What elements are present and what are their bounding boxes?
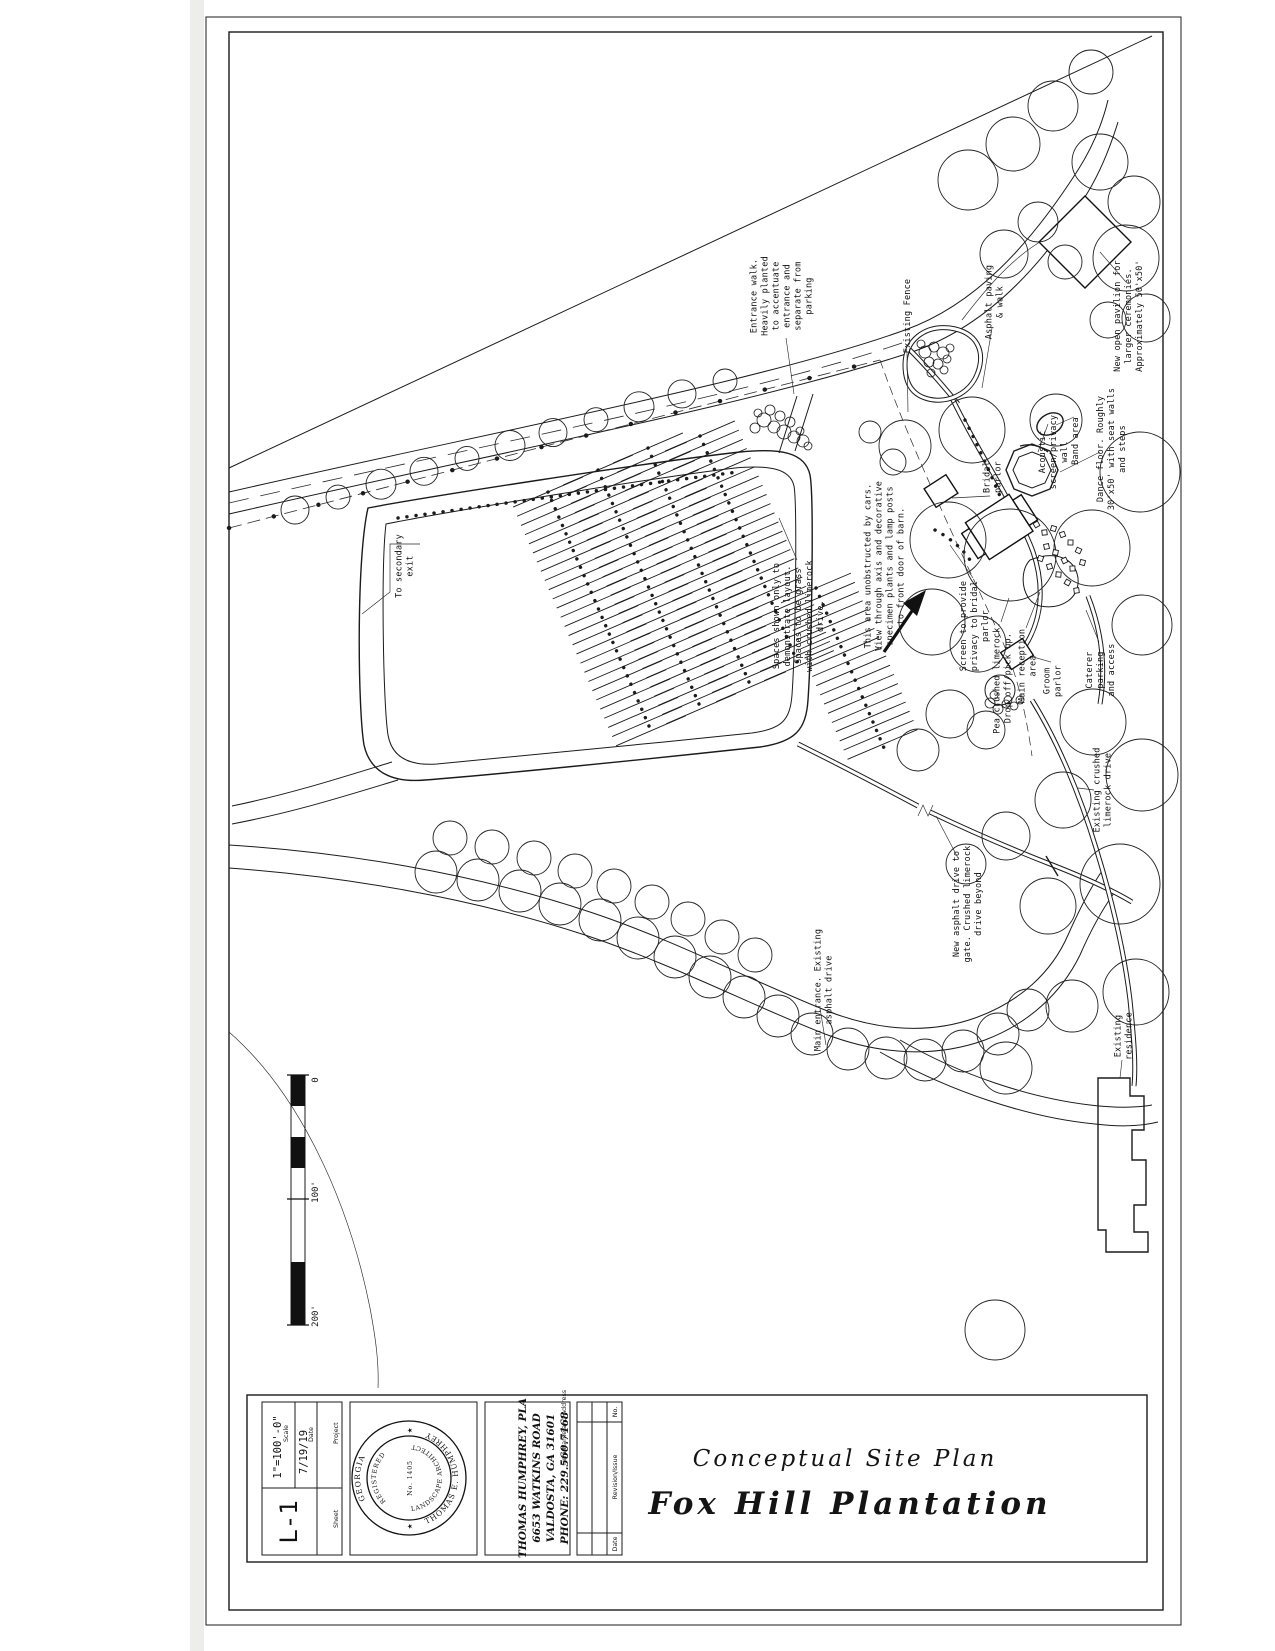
seal-profession: LANDSCAPE ARCHITECT	[411, 1443, 445, 1513]
revision-date-header: Date	[612, 1536, 619, 1551]
tree-canopy	[1035, 772, 1091, 828]
title-block: Project Date 7/19/19 Scale 1"=100'-0" Sh…	[247, 1390, 1147, 1562]
plan-label-new-pavilion: New open pavilion forlarger ceremonies.A…	[1113, 260, 1145, 372]
svg-text:Dance floor. Roughly30'x50' wi: Dance floor. Roughly30'x50' with seat wa…	[1096, 388, 1128, 510]
seal-star-right: ★	[407, 1427, 414, 1433]
tree-canopy	[982, 812, 1030, 860]
tree-canopy	[1007, 989, 1049, 1031]
parking-loop-outer	[359, 451, 812, 781]
registration-seal: GEORGIA THOMAS E. HUMPHREY REGISTERED LA…	[352, 1421, 466, 1535]
tree-canopy	[879, 420, 931, 472]
tree-canopy	[433, 821, 467, 855]
flagstone	[1075, 547, 1082, 554]
property-line	[229, 36, 1152, 468]
tree-canopy	[1108, 176, 1160, 228]
plan-linework	[229, 36, 1180, 1388]
svg-text:Existing Fence: Existing Fence	[903, 279, 913, 353]
tree-canopy	[689, 956, 731, 998]
plan-label-existing-fence: Existing Fence	[903, 279, 913, 353]
tree-canopy	[827, 1028, 869, 1070]
tree-canopy	[1106, 739, 1178, 811]
tree-canopy	[1054, 510, 1130, 586]
flagstone	[1064, 579, 1071, 586]
svg-text:To secondaryexit: To secondaryexit	[395, 534, 416, 598]
svg-text:New open pavilion forlarger ce: New open pavilion forlarger ceremonies.A…	[1113, 260, 1145, 372]
shrub	[804, 442, 812, 450]
scale-zero: 0	[311, 1077, 321, 1082]
tree-canopy	[455, 446, 479, 470]
svg-text:Pea crushed limerock.Drop off/: Pea crushed limerock.Drop off/pick up.	[993, 622, 1014, 734]
shrub	[775, 411, 785, 421]
secondary-exit-leader	[362, 544, 420, 614]
flagstone	[1068, 540, 1073, 545]
tree-canopy	[457, 859, 499, 901]
tree-canopy	[705, 920, 739, 954]
plan-label-new-asphalt: New asphalt drive togate. Crushed limero…	[952, 846, 984, 963]
date-value: 7/19/19	[298, 1430, 310, 1474]
tree-canopy	[558, 854, 592, 888]
firm-box: Firm Name and Address THOMAS HUMPHREY, P…	[485, 1390, 571, 1558]
shrub	[924, 357, 934, 367]
flagstone	[1070, 566, 1075, 571]
svg-text:Acousticscreen/privacywall: Acousticscreen/privacywall	[1038, 415, 1070, 489]
sheet-subtitle: Conceptual Site Plan	[693, 1446, 998, 1472]
plan-label-limerock-drive: Existing crushedlimerock drive	[1093, 747, 1114, 832]
svg-text:New asphalt drive togate. Crus: New asphalt drive togate. Crushed limero…	[952, 846, 984, 963]
flagstone	[1050, 525, 1056, 531]
flagstone	[1044, 544, 1050, 550]
revision-issue-header: Revision/Issue	[612, 1455, 619, 1500]
scale-value: 1"=100'-0"	[272, 1415, 284, 1478]
hedge-row	[398, 472, 738, 518]
tree-canopy	[1072, 134, 1128, 190]
shrub	[917, 340, 925, 348]
shrub	[940, 366, 948, 374]
svg-text:Catererparkingand access: Catererparkingand access	[1085, 643, 1117, 696]
svg-text:Groomparlor: Groomparlor	[1043, 665, 1064, 697]
shrub	[750, 423, 760, 433]
tree-canopy	[899, 589, 965, 655]
tree-canopy	[738, 938, 772, 972]
tree-canopy	[939, 397, 1005, 463]
revision-table: No. Revision/Issue Date	[577, 1402, 622, 1555]
plan-label-residence: Existingresidence	[1114, 1012, 1135, 1060]
svg-text:Existing crushedlimerock drive: Existing crushedlimerock drive	[1093, 747, 1114, 832]
tree-canopy	[517, 841, 551, 875]
flagstone	[1053, 550, 1059, 556]
tree-canopy	[671, 902, 705, 936]
tree-canopy	[281, 496, 309, 524]
tree-canopy	[757, 995, 799, 1037]
shrub	[946, 344, 954, 352]
plan-label-spaces-note: Spaces shown only todemonstrate layout.S…	[772, 560, 826, 672]
plan-label-bridal-parlor: Bridalparlor	[983, 461, 1004, 493]
secondary-exit-road	[232, 762, 398, 824]
flagstone	[1059, 531, 1065, 537]
parking-hedge	[548, 492, 652, 733]
svg-text:LANDSCAPE ARCHITECT: LANDSCAPE ARCHITECT	[411, 1443, 445, 1513]
road-centerline	[229, 341, 908, 503]
svg-text:This area unobstructed by cars: This area unobstructed by cars.View thro…	[864, 481, 907, 651]
site-plan-sheet: Existing Fence Asphalt paving& walk New …	[0, 0, 1275, 1651]
tree-canopy	[1060, 689, 1126, 755]
flagstone	[1079, 559, 1085, 565]
project-label: Project	[333, 1422, 340, 1444]
tree-canopy	[723, 976, 765, 1018]
shrub	[768, 421, 780, 433]
plan-label-groom-parlor: Groomparlor	[1043, 665, 1064, 697]
tree-canopy	[1028, 81, 1078, 131]
tree-canopy	[1020, 878, 1076, 934]
scan-edge-shadow	[190, 0, 204, 1651]
barn-structure	[958, 489, 1042, 565]
tree-canopy	[410, 457, 438, 485]
tree-canopy	[326, 485, 350, 509]
flagstone	[1056, 572, 1061, 577]
plan-label-secondary-exit: To secondaryexit	[395, 534, 416, 598]
scale-bar: 0 100' 200'	[287, 1075, 321, 1327]
revision-no-header: No.	[612, 1407, 619, 1417]
tree-canopy	[597, 869, 631, 903]
seal-number: No. 1405	[407, 1460, 414, 1496]
residence-footprint	[1098, 1078, 1148, 1252]
tree-canopy	[475, 830, 509, 864]
parking-hedge	[648, 448, 752, 689]
fields-box: Project Date 7/19/19 Scale 1"=100'-0" Sh…	[262, 1402, 342, 1555]
flagstone	[1037, 555, 1043, 561]
plan-labels: Existing Fence Asphalt paving& walk New …	[395, 256, 1146, 1060]
gate-drive-a-fill	[798, 744, 918, 806]
seal-box: GEORGIA THOMAS E. HUMPHREY REGISTERED LA…	[350, 1402, 477, 1555]
tree-canopy	[617, 917, 659, 959]
residence-drive-inner	[880, 1052, 1158, 1126]
svg-text:Bridalparlor: Bridalparlor	[983, 461, 1004, 493]
plan-label-axis-note: This area unobstructed by cars.View thro…	[864, 481, 907, 651]
plan-label-drop-off: Pea crushed limerock.Drop off/pick up.	[993, 622, 1014, 734]
tree-canopy	[495, 431, 525, 461]
firm-address: THOMAS HUMPHREY, PLA6653 WATKINS ROADVAL…	[517, 1398, 571, 1558]
tree-canopy	[624, 392, 654, 422]
plan-label-acoustic-screen: Acousticscreen/privacywall	[1038, 415, 1070, 489]
svg-text:Band area: Band area	[1071, 417, 1081, 465]
tree-canopy	[579, 899, 621, 941]
tree-canopy	[986, 117, 1040, 171]
svg-text:REGISTERED: REGISTERED	[371, 1451, 387, 1505]
plan-label-band-area: Band area	[1071, 417, 1081, 465]
plan-label-dance-floor: Dance floor. Roughly30'x50' with seat wa…	[1096, 388, 1128, 510]
svg-text:Spaces shown only todemonstrat: Spaces shown only todemonstrate layout.S…	[772, 560, 826, 672]
tree-canopy	[635, 885, 669, 919]
tree-canopy	[865, 1037, 907, 1079]
seal-registered: REGISTERED	[371, 1451, 387, 1505]
tree-canopy	[965, 1300, 1025, 1360]
svg-text:Existingresidence: Existingresidence	[1114, 1012, 1135, 1060]
scale-end: 200'	[311, 1305, 321, 1327]
tree-canopy	[1018, 202, 1058, 242]
road-edge-north	[229, 100, 1108, 492]
tree-canopy	[1046, 980, 1098, 1032]
parking-hedge	[598, 470, 702, 711]
plan-label-entrance-walk: Entrance walk.Heavily plantedto accentua…	[750, 256, 815, 336]
sheet-title: Fox Hill Plantation	[647, 1486, 1051, 1522]
tree-canopy	[880, 449, 906, 475]
tree-canopy	[859, 421, 881, 443]
scale-label: Scale	[283, 1425, 290, 1442]
svg-text:Entrance walk.Heavily plantedt: Entrance walk.Heavily plantedto accentua…	[750, 256, 815, 336]
tree-canopy	[942, 1030, 984, 1072]
scale-mid: 100'	[311, 1181, 321, 1203]
tree-canopy	[366, 469, 396, 499]
flagstone	[1046, 563, 1052, 569]
tree-canopy	[539, 883, 581, 925]
sheet-value: L-1	[275, 1500, 303, 1543]
seal-star-left: ★	[407, 1523, 414, 1529]
tree-canopy	[938, 150, 998, 210]
plan-label-caterer: Catererparkingand access	[1085, 643, 1117, 696]
sheet-border	[206, 17, 1181, 1625]
sheet-label: Sheet	[333, 1509, 340, 1528]
shrub	[765, 405, 775, 415]
shrub	[933, 359, 943, 369]
flagstone	[1074, 588, 1080, 594]
flagstone	[1042, 530, 1048, 536]
